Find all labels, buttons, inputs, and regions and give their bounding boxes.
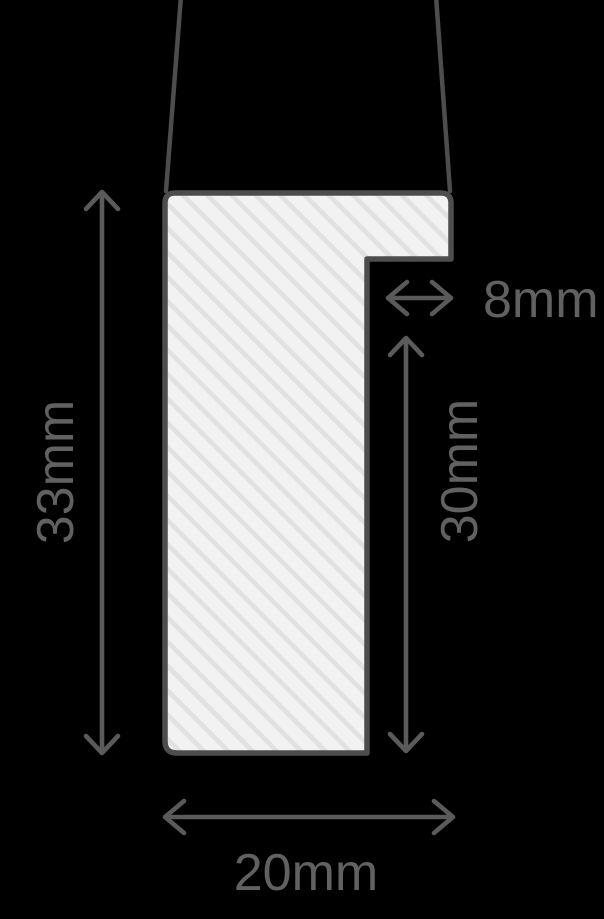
dimension-label-overall-height: 33mm xyxy=(27,400,85,544)
dimension-label-rebate-height: 30mm xyxy=(431,399,489,543)
moulding-profile-diagram: 33mm 8mm 30mm 20mm xyxy=(0,0,604,919)
dimension-label-overall-width: 20mm xyxy=(234,844,378,902)
profile-diagram-canvas: 33mm 8mm 30mm 20mm xyxy=(0,0,604,919)
dimension-label-rebate-width: 8mm xyxy=(483,271,599,329)
